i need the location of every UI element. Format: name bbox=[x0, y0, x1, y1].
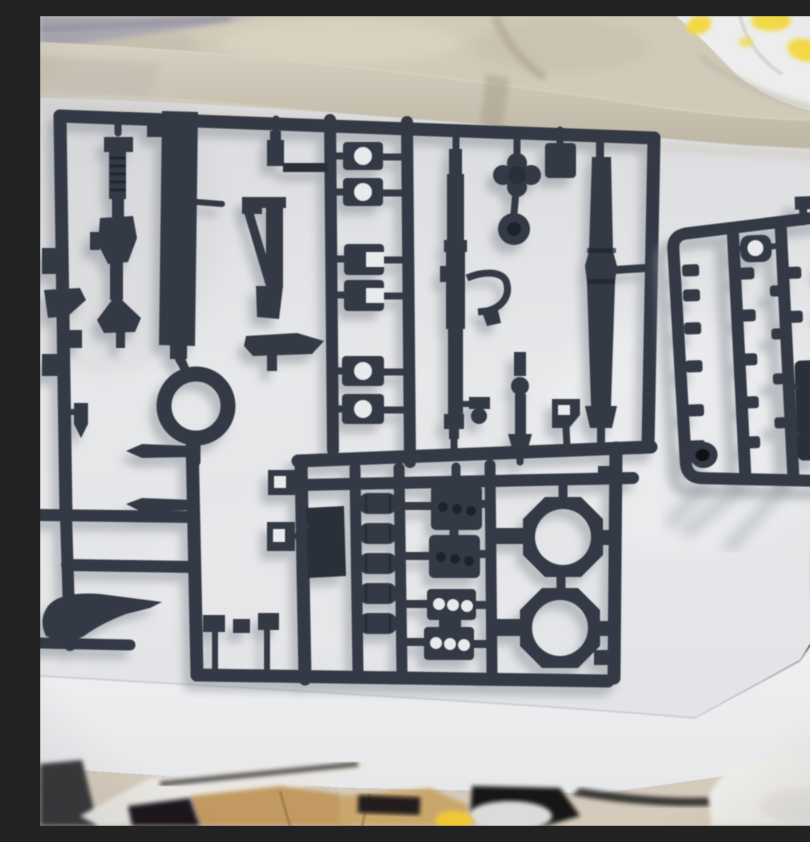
photo-canvas bbox=[40, 16, 810, 826]
vignette bbox=[40, 16, 810, 826]
model-kit-photo: Top-down photograph of two dark gunmetal… bbox=[40, 16, 810, 826]
